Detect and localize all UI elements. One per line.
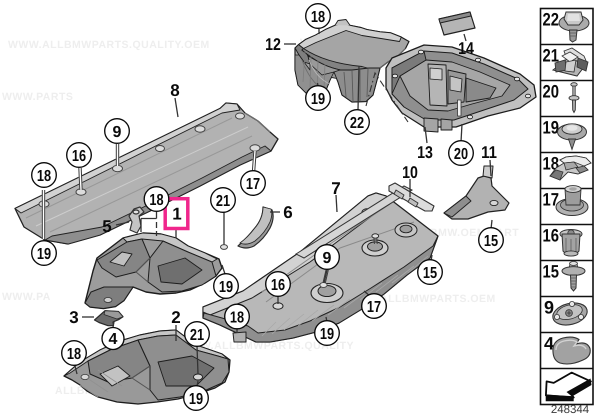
svg-text:ALLBMWPARTS.OEM: ALLBMWPARTS.OEM — [380, 293, 496, 305]
svg-text:4: 4 — [109, 331, 118, 348]
svg-text:WWW.ALLBMWPARTS.QUALITY.OEM: WWW.ALLBMWPARTS.QUALITY.OEM — [8, 39, 210, 51]
svg-text:15: 15 — [484, 233, 498, 250]
svg-text:19: 19 — [311, 91, 325, 108]
svg-text:21: 21 — [190, 327, 204, 344]
svg-text:8: 8 — [170, 81, 179, 100]
svg-text:18: 18 — [67, 346, 81, 363]
svg-text:WWW.PA: WWW.PA — [2, 291, 51, 303]
svg-text:9: 9 — [323, 250, 332, 267]
svg-text:11: 11 — [481, 143, 497, 162]
svg-text:9: 9 — [113, 124, 122, 141]
svg-text:9: 9 — [544, 298, 554, 318]
svg-text:248344: 248344 — [551, 404, 590, 416]
svg-text:16: 16 — [271, 277, 285, 294]
svg-text:5: 5 — [102, 217, 111, 236]
svg-text:6: 6 — [283, 203, 292, 222]
svg-text:22: 22 — [350, 115, 364, 132]
svg-text:15: 15 — [423, 265, 437, 282]
svg-text:12: 12 — [265, 35, 281, 54]
svg-text:16: 16 — [543, 226, 560, 246]
svg-text:18: 18 — [311, 9, 325, 26]
svg-text:18: 18 — [37, 168, 51, 185]
svg-text:17: 17 — [246, 176, 260, 193]
svg-text:20: 20 — [543, 82, 560, 102]
svg-text:19: 19 — [37, 246, 51, 263]
svg-text:2: 2 — [171, 308, 180, 327]
svg-text:16: 16 — [72, 148, 86, 165]
svg-text:18: 18 — [149, 192, 163, 209]
svg-text:7: 7 — [331, 179, 340, 198]
svg-text:15: 15 — [543, 262, 560, 282]
svg-text:WWW.PARTS: WWW.PARTS — [2, 91, 73, 103]
svg-text:14: 14 — [458, 39, 474, 58]
svg-text:1: 1 — [172, 205, 181, 224]
svg-text:19: 19 — [543, 118, 560, 138]
svg-text:18: 18 — [230, 309, 244, 326]
svg-text:10: 10 — [402, 163, 418, 182]
svg-text:21: 21 — [216, 193, 230, 210]
svg-text:19: 19 — [320, 326, 334, 343]
svg-text:22: 22 — [543, 10, 560, 30]
svg-text:BMW.OEM.PART: BMW.OEM.PART — [430, 227, 519, 239]
svg-text:17: 17 — [367, 299, 381, 316]
svg-text:20: 20 — [454, 146, 468, 163]
svg-text:13: 13 — [417, 143, 433, 162]
svg-text:19: 19 — [219, 279, 233, 296]
svg-text:19: 19 — [189, 391, 203, 408]
svg-text:3: 3 — [69, 308, 78, 327]
